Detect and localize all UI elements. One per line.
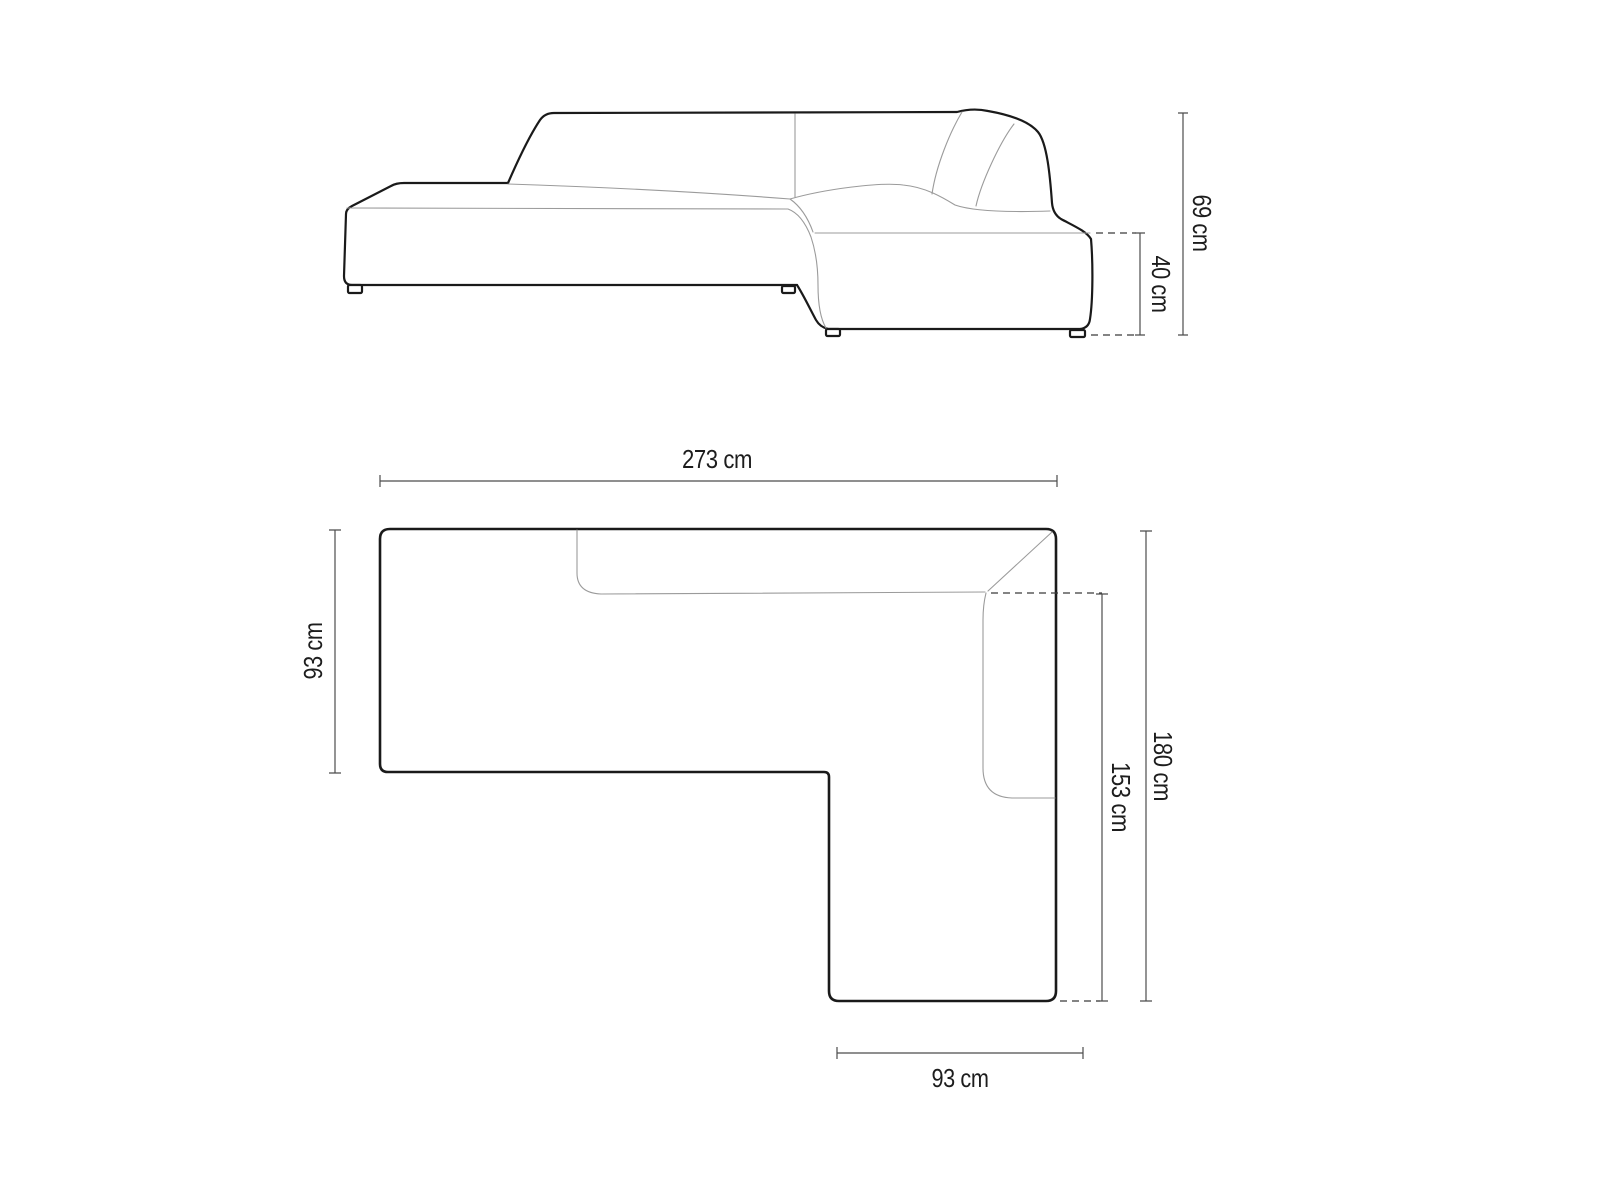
plan-backrest-inner-right [983, 593, 1055, 798]
diagram-svg: 69 cm 40 cm 273 cm [0, 0, 1600, 1200]
corner-cushion-seam-right [976, 124, 1014, 206]
top-view-projection-group [991, 593, 1102, 1001]
sofa-base-seam [347, 208, 826, 328]
dim-seat-height: 40 cm [1135, 233, 1176, 335]
sofa-foot-mid [782, 286, 795, 293]
dim-left-depth-label: 93 cm [298, 623, 328, 680]
dim-chaise-width-line [837, 1047, 1083, 1059]
chaise-seat-curve [790, 184, 1050, 211]
dim-total-width-label: 273 cm [682, 444, 752, 474]
dim-left-depth: 93 cm [298, 530, 341, 773]
dimension-diagram: 69 cm 40 cm 273 cm [0, 0, 1600, 1200]
side-view-projection-group [1091, 233, 1136, 335]
dim-seat-height-label: 40 cm [1146, 256, 1176, 313]
top-view-seams-group [577, 530, 1055, 798]
dim-chaise-width-label: 93 cm [932, 1063, 989, 1093]
sofa-side-seat-outline [344, 183, 797, 285]
side-view-outline-group [344, 110, 1092, 337]
sofa-foot-left [348, 285, 362, 293]
dim-left-depth-line [329, 530, 341, 773]
plan-backrest-inner-top [577, 530, 985, 594]
sofa-seat-edge [508, 184, 790, 199]
chaise-front-seam [790, 199, 813, 232]
dim-total-width-line [380, 475, 1057, 487]
sofa-foot-chaise-left [826, 329, 840, 336]
dim-total-height: 69 cm [1178, 113, 1217, 335]
dim-total-depth: 180 cm [1140, 531, 1178, 1001]
top-view: 273 cm 93 cm 180 cm 153 cm 93 cm [298, 444, 1178, 1093]
dim-total-height-line [1178, 113, 1188, 335]
plan-corner-diagonal-seam [988, 532, 1052, 591]
sofa-side-back-and-chaise-outline [508, 110, 1092, 329]
side-view: 69 cm 40 cm [344, 110, 1217, 337]
corner-cushion-seam-left [932, 112, 962, 194]
dim-chaise-length-label: 153 cm [1106, 762, 1136, 832]
sofa-plan-outline [380, 529, 1056, 1001]
sofa-foot-chaise-right [1070, 330, 1085, 337]
dim-total-depth-label: 180 cm [1148, 731, 1178, 801]
top-view-outline-group [380, 529, 1056, 1001]
dim-chaise-length: 153 cm [1096, 594, 1136, 1001]
dim-seat-height-line [1135, 233, 1145, 335]
dim-chaise-width: 93 cm [837, 1047, 1083, 1093]
side-view-seams-group [347, 112, 1090, 328]
dim-total-height-label: 69 cm [1187, 195, 1217, 252]
dim-total-width: 273 cm [380, 444, 1057, 487]
